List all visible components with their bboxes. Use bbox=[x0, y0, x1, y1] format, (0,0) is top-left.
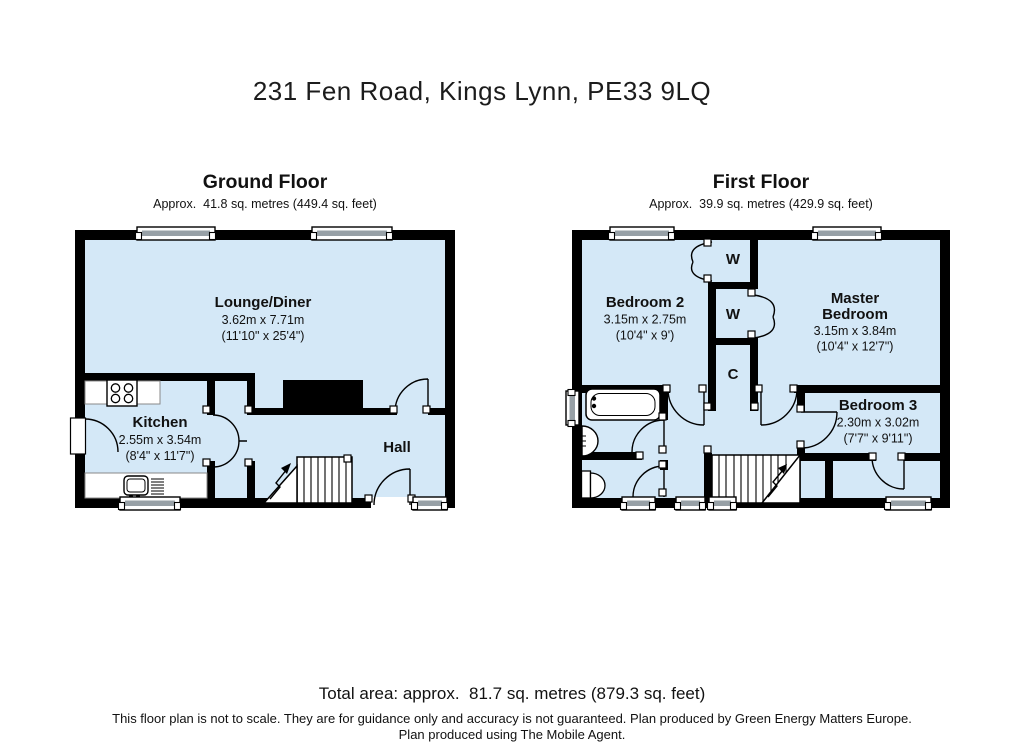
master-bedroom-name-line1: Master bbox=[831, 290, 880, 307]
front-door-opening bbox=[371, 497, 412, 509]
window bbox=[675, 497, 706, 510]
window-vertical bbox=[566, 390, 579, 427]
ff-staircase bbox=[712, 455, 800, 503]
master-bedroom-name-line2: Bedroom bbox=[822, 306, 888, 323]
lounge-diner-name: Lounge/Diner bbox=[215, 294, 312, 311]
bedroom2-metric: 3.15m x 2.75m bbox=[604, 313, 687, 327]
window bbox=[708, 497, 737, 510]
master-bedroom-metric: 3.15m x 3.84m bbox=[814, 324, 897, 338]
bedroom3-metric: 2.30m x 3.02m bbox=[837, 416, 920, 430]
floorplan-page: 231 Fen Road, Kings Lynn, PE33 9LQ Groun… bbox=[0, 0, 1024, 744]
hob-icon bbox=[107, 380, 137, 406]
window bbox=[621, 497, 656, 510]
window bbox=[812, 227, 882, 240]
back-door-opening bbox=[71, 418, 86, 454]
window bbox=[609, 227, 675, 240]
bathtub-icon bbox=[586, 389, 660, 420]
bedroom2-name: Bedroom 2 bbox=[606, 294, 684, 311]
lounge-diner-imperial: (11'10" x 25'4") bbox=[222, 329, 305, 343]
ground-floor-title: Ground Floor bbox=[75, 171, 455, 194]
bedroom3-name: Bedroom 3 bbox=[839, 397, 917, 414]
bedroom2-imperial: (10'4" x 9') bbox=[616, 329, 675, 343]
kitchen-metric: 2.55m x 3.54m bbox=[119, 433, 202, 447]
kitchen-name: Kitchen bbox=[132, 414, 187, 431]
first-floor-header: First Floor Approx. 39.9 sq. metres (429… bbox=[572, 171, 950, 211]
hall-name: Hall bbox=[383, 439, 411, 456]
cupboard-label: C bbox=[728, 366, 739, 383]
chimney-breast bbox=[283, 380, 363, 408]
first-floor-title: First Floor bbox=[572, 171, 950, 194]
kitchen-imperial: (8'4" x 11'7") bbox=[125, 449, 194, 463]
window bbox=[119, 497, 181, 510]
window bbox=[412, 497, 448, 510]
lounge-diner-metric: 3.62m x 7.71m bbox=[222, 313, 305, 327]
window bbox=[136, 227, 216, 240]
ground-floor-area: Approx. 41.8 sq. metres (449.4 sq. feet) bbox=[75, 197, 455, 211]
page-title: 231 Fen Road, Kings Lynn, PE33 9LQ bbox=[0, 76, 964, 107]
first-floor-plan: Bedroom 2 3.15m x 2.75m (10'4" x 9') Mas… bbox=[563, 220, 959, 518]
window bbox=[311, 227, 393, 240]
wardrobe2-label: W bbox=[726, 306, 741, 323]
ground-floor-header: Ground Floor Approx. 41.8 sq. metres (44… bbox=[75, 171, 455, 211]
wardrobe1-label: W bbox=[726, 251, 741, 268]
master-bedroom-imperial: (10'4" x 12'7") bbox=[817, 340, 894, 354]
window bbox=[885, 497, 932, 510]
first-floor-area: Approx. 39.9 sq. metres (429.9 sq. feet) bbox=[572, 197, 950, 211]
total-area: Total area: approx. 81.7 sq. metres (879… bbox=[0, 684, 1024, 704]
bedroom3-imperial: (7'7" x 9'11") bbox=[843, 432, 912, 446]
disclaimer-line1: This floor plan is not to scale. They ar… bbox=[0, 711, 1024, 726]
disclaimer-line2: Plan produced using The Mobile Agent. bbox=[0, 727, 1024, 742]
ground-floor-plan: Lounge/Diner 3.62m x 7.71m (11'10" x 25'… bbox=[68, 220, 464, 518]
